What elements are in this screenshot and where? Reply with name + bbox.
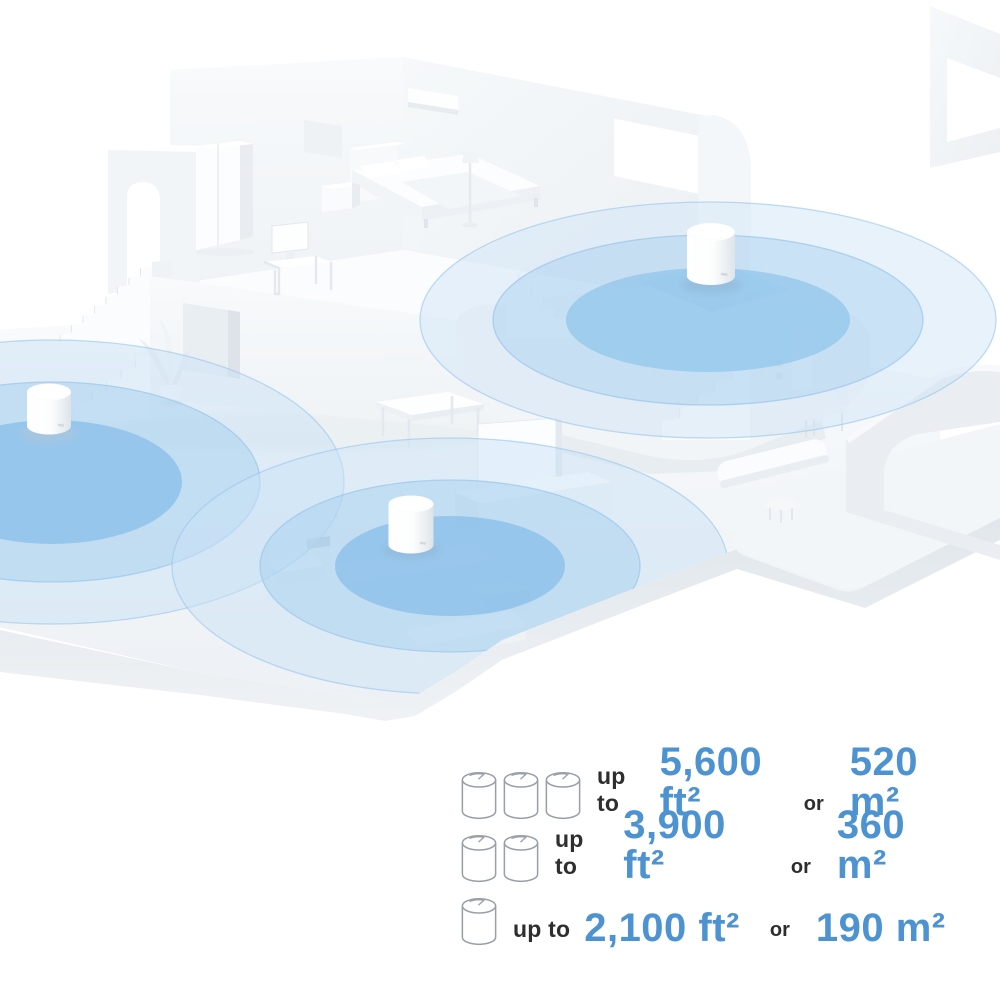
or-label: or	[770, 919, 790, 948]
deco-router-living-room	[382, 496, 440, 559]
or-label: or	[791, 856, 811, 885]
coverage-row-1-unit: up to 2,100 ft² or 190 m²	[460, 892, 960, 948]
deco-unit-icon	[502, 770, 540, 822]
corner-wall-window	[930, 6, 1000, 168]
coverage-row-2-units: up to 3,900 ft² or 360 m²	[460, 829, 960, 885]
coverage-legend: up to 5,600 ft² or 520 m² up to 3,900 ft…	[460, 766, 960, 955]
deco-unit-icon	[460, 770, 498, 822]
coverage-zone-living	[172, 438, 728, 694]
up-to-label: up to	[513, 916, 570, 948]
deco-unit-icon	[502, 833, 540, 885]
deco-unit-icon	[460, 833, 498, 885]
area-imperial-value: 3,900 ft²	[623, 805, 771, 885]
area-metric-value: 190 m²	[816, 908, 946, 948]
side-stool	[765, 500, 797, 524]
deco-unit-icon	[460, 896, 498, 948]
area-imperial-value: 2,100 ft²	[584, 908, 740, 948]
wall-art	[304, 120, 342, 158]
deco-router-upper-landing	[681, 223, 741, 294]
area-metric-value: 360 m²	[837, 805, 960, 885]
up-to-label: up to	[555, 826, 609, 885]
or-label: or	[804, 793, 824, 822]
product-coverage-illustration: up to 5,600 ft² or 520 m² up to 3,900 ft…	[0, 0, 1000, 1000]
deco-unit-icon	[544, 770, 582, 822]
deco-router-left-room	[21, 384, 77, 443]
